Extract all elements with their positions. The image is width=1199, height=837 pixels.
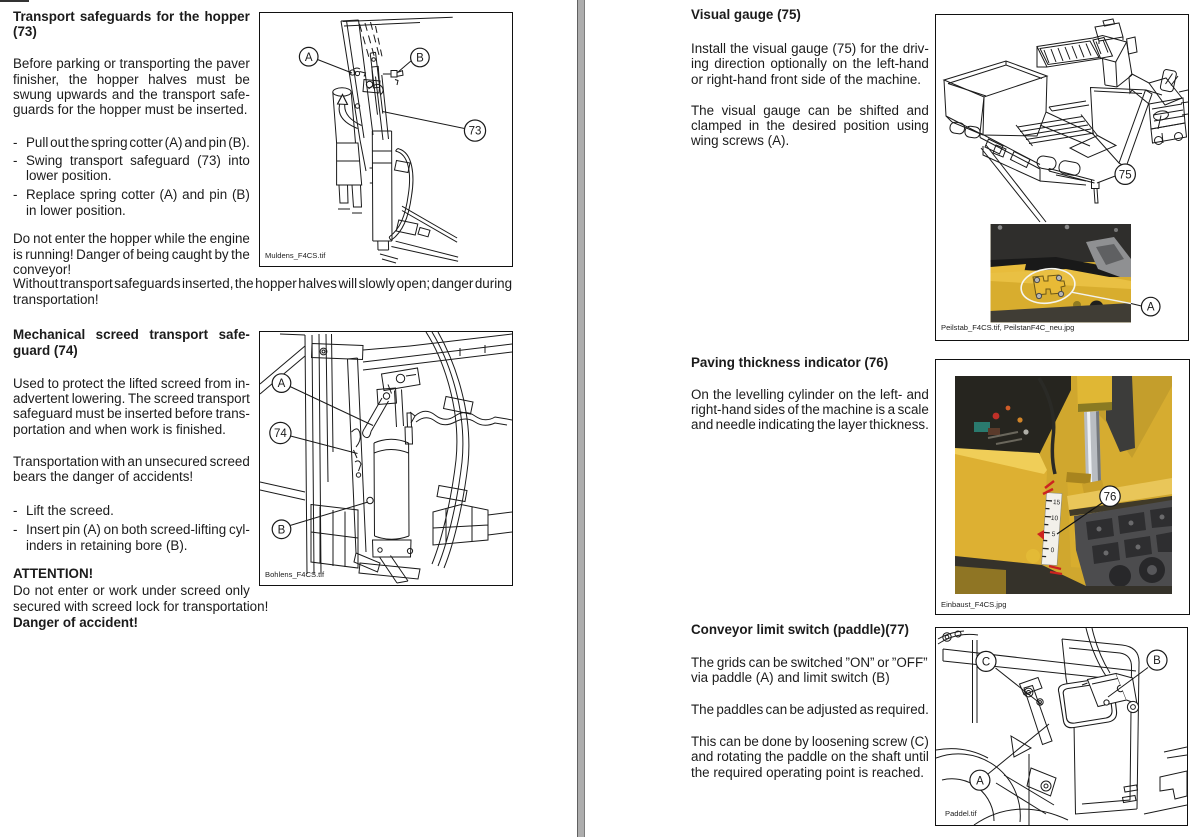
svg-text:B: B — [416, 53, 424, 65]
svg-text:15: 15 — [1053, 499, 1061, 507]
svg-text:76: 76 — [1104, 491, 1117, 503]
svg-text:A: A — [278, 378, 286, 390]
svg-text:A: A — [1147, 302, 1155, 314]
svg-text:74: 74 — [274, 428, 287, 440]
svg-text:10: 10 — [1051, 514, 1059, 522]
svg-text:75: 75 — [1119, 169, 1132, 181]
svg-text:A: A — [305, 52, 313, 64]
svg-text:C: C — [982, 656, 990, 668]
svg-text:B: B — [278, 524, 286, 536]
svg-text:B: B — [1153, 655, 1161, 667]
svg-text:A: A — [976, 775, 984, 787]
svg-text:73: 73 — [469, 126, 482, 138]
